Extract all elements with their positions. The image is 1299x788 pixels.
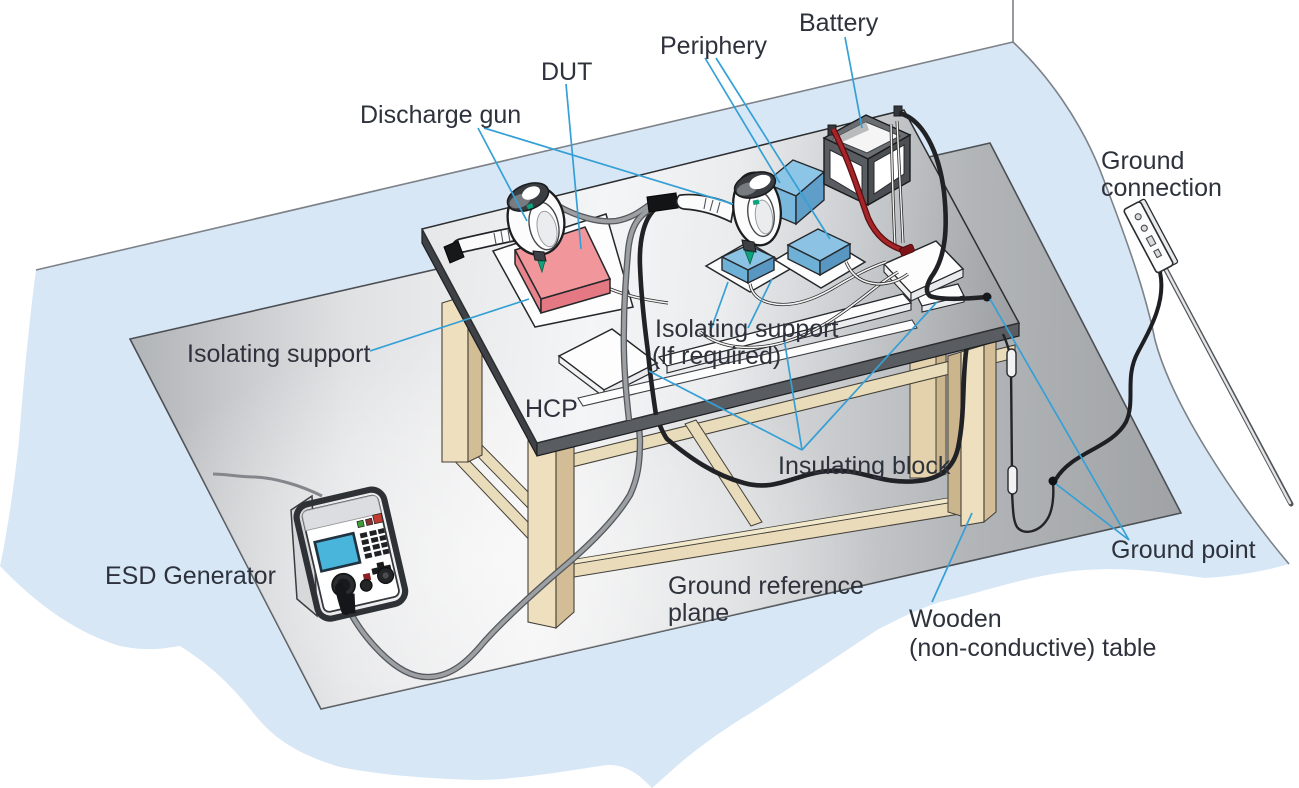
svg-text:connection: connection	[1101, 174, 1222, 202]
svg-text:HCP: HCP	[525, 395, 578, 423]
svg-text:Insulating block: Insulating block	[778, 452, 951, 480]
svg-text:Wooden: Wooden	[909, 605, 1002, 633]
svg-text:Isolating support: Isolating support	[187, 340, 371, 368]
svg-text:(If required): (If required)	[652, 342, 781, 370]
svg-text:Battery: Battery	[799, 9, 879, 37]
svg-text:Ground: Ground	[1101, 147, 1184, 175]
svg-text:DUT: DUT	[541, 58, 592, 86]
svg-text:plane: plane	[668, 599, 729, 627]
svg-text:Discharge gun: Discharge gun	[360, 101, 521, 129]
svg-text:ESD Generator: ESD Generator	[105, 562, 276, 590]
svg-text:Periphery: Periphery	[660, 32, 767, 60]
svg-text:(non-conductive) table: (non-conductive) table	[909, 634, 1156, 662]
svg-text:Ground reference: Ground reference	[668, 572, 864, 600]
svg-text:Ground point: Ground point	[1111, 536, 1256, 564]
svg-text:Isolating support: Isolating support	[655, 315, 839, 343]
